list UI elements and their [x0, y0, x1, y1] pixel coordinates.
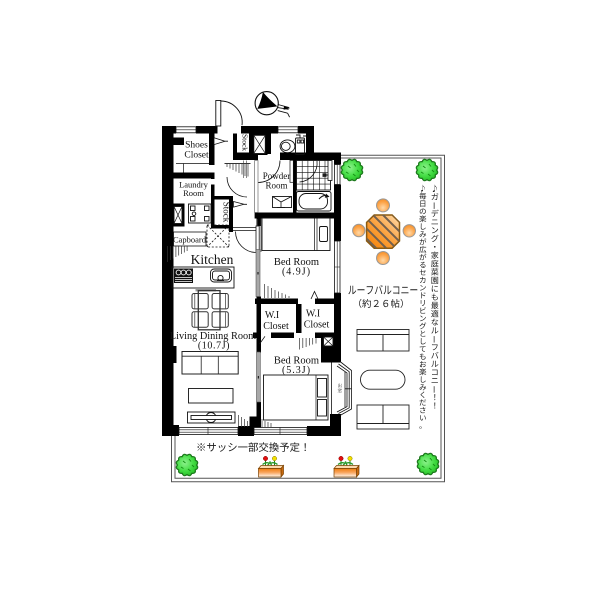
svg-text:Shoes: Shoes — [185, 141, 208, 151]
svg-text:Kitchen: Kitchen — [191, 252, 234, 267]
svg-text:Room: Room — [183, 188, 204, 198]
svg-text:(10.7J): (10.7J) — [198, 341, 230, 352]
svg-text:Stock: Stock — [222, 202, 232, 223]
svg-text:Stock: Stock — [240, 134, 249, 151]
svg-text:W.I: W.I — [306, 309, 320, 320]
svg-text:Closet: Closet — [263, 321, 289, 332]
svg-text:(5.3J): (5.3J) — [282, 365, 311, 376]
svg-text:W.I: W.I — [265, 310, 279, 321]
svg-text:Closet: Closet — [184, 151, 209, 161]
svg-text:Capboard: Capboard — [173, 235, 207, 245]
svg-text:Closet: Closet — [304, 320, 330, 331]
svg-text:(4.9J): (4.9J) — [282, 267, 311, 278]
svg-text:Powder: Powder — [263, 171, 291, 181]
svg-text:Room: Room — [265, 181, 287, 191]
